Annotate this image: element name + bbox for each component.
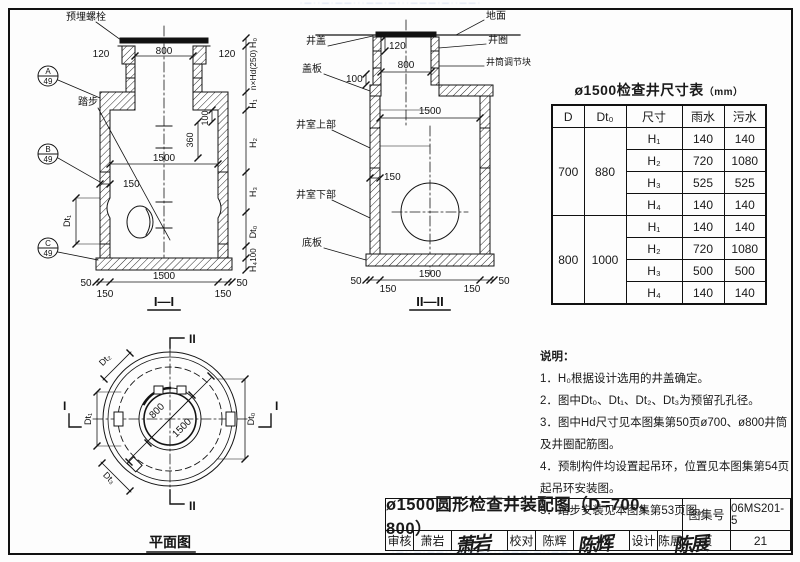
check-label: 审核 bbox=[385, 530, 414, 551]
dim-50-right: 50 bbox=[498, 276, 510, 287]
design-signature: 陈展 bbox=[672, 529, 708, 559]
dim-100-right: 100 bbox=[249, 248, 258, 262]
plan-view-drawing: 800 1500 Dt₁ Dt₀ Dt₂ Dt₃ II II I I 平面图 bbox=[55, 330, 305, 556]
plan-dt3: Dt₃ bbox=[101, 470, 117, 486]
dim-dt1: Dt₁ bbox=[62, 215, 72, 227]
cell: H₁ bbox=[626, 128, 682, 150]
cell: 1080 bbox=[724, 238, 766, 260]
col-d: D bbox=[552, 105, 584, 128]
dim-nhd: n×Hd(250) bbox=[248, 50, 258, 91]
table-title-unit: （mm） bbox=[704, 87, 744, 98]
callout-b: B bbox=[45, 145, 50, 154]
label-base-slab: 底板 bbox=[302, 236, 322, 249]
cell: 525 bbox=[724, 172, 766, 194]
dim-1500: 1500 bbox=[419, 106, 442, 117]
cell: 140 bbox=[724, 128, 766, 150]
watermark-bottom: ·—··—·——···——·—···———·—··——· bbox=[392, 549, 574, 556]
section-i-caption: I—I bbox=[154, 294, 174, 309]
cell: 140 bbox=[682, 282, 724, 305]
notes-title: 说明： bbox=[540, 346, 794, 368]
plan-mark-ii-top: II bbox=[189, 332, 196, 346]
plan-mark-i-left: I bbox=[63, 399, 66, 413]
cell: 140 bbox=[682, 128, 724, 150]
section-ii-drawing: 地面 井盖 井圈 井筒调节块 盖板 井室上部 井室下部 底板 120 800 1… bbox=[288, 6, 538, 324]
callout-a: A bbox=[45, 67, 51, 76]
note-item-3: 3．图中Hd尺寸见本图集第50页ø700、ø800井筒及井圈配筋图。 bbox=[540, 412, 794, 456]
dim-h3: H₃ bbox=[248, 187, 258, 197]
col-sewage: 污水 bbox=[724, 105, 766, 128]
cell: H₃ bbox=[626, 260, 682, 282]
drawing-sheet: ·—··—·——···——·—···———·—··——· bbox=[0, 0, 800, 562]
dim-120: 120 bbox=[389, 41, 406, 52]
callout-c: C bbox=[45, 239, 51, 248]
label-upper-chamber: 井室上部 bbox=[296, 118, 336, 131]
proof-signature: 陈辉 bbox=[576, 529, 612, 559]
cell-dto-880: 880 bbox=[584, 128, 626, 216]
dim-150-br: 150 bbox=[215, 289, 232, 300]
label-ground: 地面 bbox=[486, 9, 506, 22]
cell: H₄ bbox=[626, 282, 682, 305]
plan-mark-ii-bottom: II bbox=[189, 499, 196, 513]
dim-100-inner: 100 bbox=[200, 110, 210, 125]
dim-h2: H₂ bbox=[248, 138, 258, 148]
label-cover-slab: 盖板 bbox=[302, 62, 322, 75]
plan-dt2: Dt₂ bbox=[97, 352, 113, 368]
dim-800: 800 bbox=[398, 60, 415, 71]
dim-50-right: 50 bbox=[236, 278, 248, 289]
dim-120-right: 120 bbox=[219, 49, 236, 60]
section-i-drawing: 预埋螺栓 踏步 120 800 120 1500 150 100 360 Dt₁… bbox=[18, 6, 280, 324]
cell: 140 bbox=[724, 282, 766, 305]
cell: H₂ bbox=[626, 150, 682, 172]
dim-800: 800 bbox=[156, 46, 173, 57]
cell: 500 bbox=[724, 260, 766, 282]
plan-dim-1500: 1500 bbox=[170, 416, 194, 440]
dim-100: 100 bbox=[346, 74, 363, 85]
page-number: 21 bbox=[730, 530, 791, 551]
cell: 140 bbox=[724, 216, 766, 238]
dim-150-right: 150 bbox=[464, 284, 481, 295]
table-row: 700 880 H₁ 140 140 bbox=[552, 128, 766, 150]
proof-label: 校对 bbox=[507, 530, 536, 551]
callout-c-num: 49 bbox=[44, 249, 53, 258]
cell: 500 bbox=[682, 260, 724, 282]
plan-dim-800: 800 bbox=[147, 401, 167, 421]
plan-dt0: Dt₀ bbox=[246, 412, 256, 425]
section-ii-caption: II—II bbox=[416, 294, 443, 309]
cell: H₁ bbox=[626, 216, 682, 238]
check-name: 萧岩 bbox=[413, 530, 452, 551]
dim-360: 360 bbox=[185, 132, 195, 147]
dim-150-left: 150 bbox=[380, 284, 397, 295]
table-header-row: D Dt₀ 尺寸 雨水 污水 bbox=[552, 105, 766, 128]
dim-120-left: 120 bbox=[93, 49, 110, 60]
atlas-no-value: 06MS201-5 bbox=[730, 498, 791, 531]
dim-h1: H₁ bbox=[248, 99, 258, 109]
plan-caption: 平面图 bbox=[149, 534, 191, 550]
sheet-title: ø1500圆形检查井装配图（D=700、800） bbox=[385, 498, 683, 531]
title-block: ø1500圆形检查井装配图（D=700、800） 图集号 06MS201-5 审… bbox=[385, 498, 791, 551]
cell: 1080 bbox=[724, 150, 766, 172]
dim-50-left: 50 bbox=[350, 276, 362, 287]
cell-d-700: 700 bbox=[552, 128, 584, 216]
dim-50-left: 50 bbox=[80, 278, 92, 289]
cell-dto-1000: 1000 bbox=[584, 216, 626, 305]
dimension-table-title: ø1500检查井尺寸表（mm） bbox=[549, 80, 769, 100]
label-well-cover: 井盖 bbox=[306, 34, 326, 47]
dim-dt0-right: Dt₀ bbox=[248, 225, 258, 238]
design-label: 设计 bbox=[629, 530, 658, 551]
label-embedded-bolt: 预埋螺栓 bbox=[66, 10, 106, 23]
dim-1500-inner: 1500 bbox=[153, 153, 176, 164]
atlas-no-label: 图集号 bbox=[682, 498, 731, 531]
cell: 720 bbox=[682, 238, 724, 260]
note-item-2: 2．图中Dt₀、Dt₁、Dt₂、Dt₃为预留孔孔径。 bbox=[540, 390, 794, 412]
cell: 720 bbox=[682, 150, 724, 172]
plan-mark-i-right: I bbox=[275, 399, 278, 413]
dim-150-wall: 150 bbox=[123, 179, 140, 190]
dim-1500-bottom: 1500 bbox=[153, 271, 176, 282]
dim-150-bl: 150 bbox=[97, 289, 114, 300]
col-dto: Dt₀ bbox=[584, 105, 626, 128]
col-rain: 雨水 bbox=[682, 105, 724, 128]
label-step: 踏步 bbox=[78, 95, 98, 108]
dim-1500-bottom: 1500 bbox=[419, 269, 442, 280]
cell: 140 bbox=[682, 216, 724, 238]
table-title-text: ø1500检查井尺寸表 bbox=[575, 82, 704, 98]
dim-150-wall: 150 bbox=[384, 172, 401, 183]
cell: H₄ bbox=[626, 194, 682, 216]
callout-b-num: 49 bbox=[44, 155, 53, 164]
plan-dt1: Dt₁ bbox=[83, 413, 93, 425]
dim-h4: H₄ bbox=[248, 262, 258, 272]
note-item-1: 1．H₀根据设计选用的井盖确定。 bbox=[540, 368, 794, 390]
dimension-table: ø1500检查井尺寸表（mm） D Dt₀ 尺寸 雨水 污水 700 880 H… bbox=[549, 80, 769, 305]
cell: 525 bbox=[682, 172, 724, 194]
cell: 140 bbox=[682, 194, 724, 216]
cell-d-800: 800 bbox=[552, 216, 584, 305]
dim-h0: H₀ bbox=[248, 38, 258, 48]
callout-a-num: 49 bbox=[44, 77, 53, 86]
cell: H₂ bbox=[626, 238, 682, 260]
label-well-ring: 井圈 bbox=[488, 33, 508, 46]
label-adjuster-block: 井筒调节块 bbox=[486, 56, 531, 67]
cell: 140 bbox=[724, 194, 766, 216]
table-row: 800 1000 H₁ 140 140 bbox=[552, 216, 766, 238]
col-size: 尺寸 bbox=[626, 105, 682, 128]
proof-name: 陈辉 bbox=[535, 530, 574, 551]
cell: H₃ bbox=[626, 172, 682, 194]
label-lower-chamber: 井室下部 bbox=[296, 188, 336, 201]
